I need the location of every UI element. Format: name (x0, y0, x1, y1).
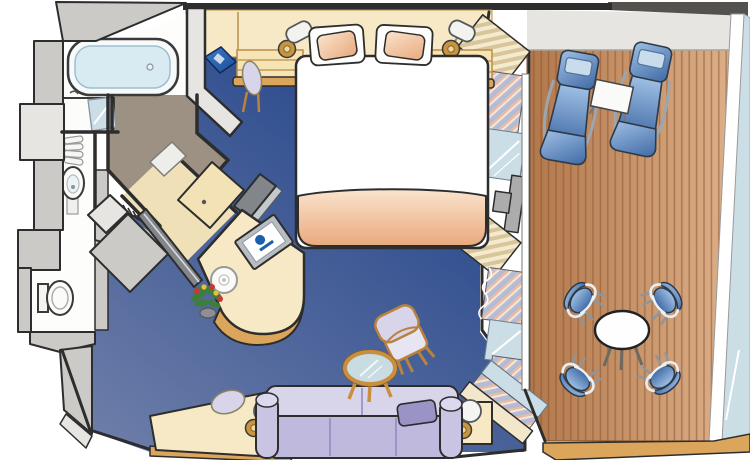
floor-plan-stage: Cruise ship suite stateroom floor plan w… (0, 0, 750, 460)
balcony (527, 2, 750, 460)
bed-blanket (298, 189, 486, 246)
wardrobe-knob (202, 200, 206, 204)
cabin (18, 2, 612, 460)
pillow-right (375, 25, 433, 66)
sofa (256, 386, 462, 458)
left-wall-cabinet (20, 104, 64, 160)
queen-bed (296, 24, 488, 248)
toilet (38, 281, 73, 315)
sofa-arm-right (440, 397, 462, 458)
wc-alcove-wall-left (18, 268, 31, 332)
sofa-lumbar-pillow (397, 399, 438, 426)
pillow-left (309, 24, 366, 66)
wc-alcove-wall-top (18, 230, 60, 270)
cabin-top-wall (183, 3, 612, 10)
floor-plan-illustration: Cruise ship suite stateroom floor plan w… (0, 0, 750, 460)
curtain-2 (478, 267, 528, 325)
door-track (522, 74, 529, 390)
plate (211, 267, 237, 293)
coffee-table (343, 350, 397, 402)
sofa-arm-left (256, 393, 278, 458)
bathtub (68, 39, 178, 95)
